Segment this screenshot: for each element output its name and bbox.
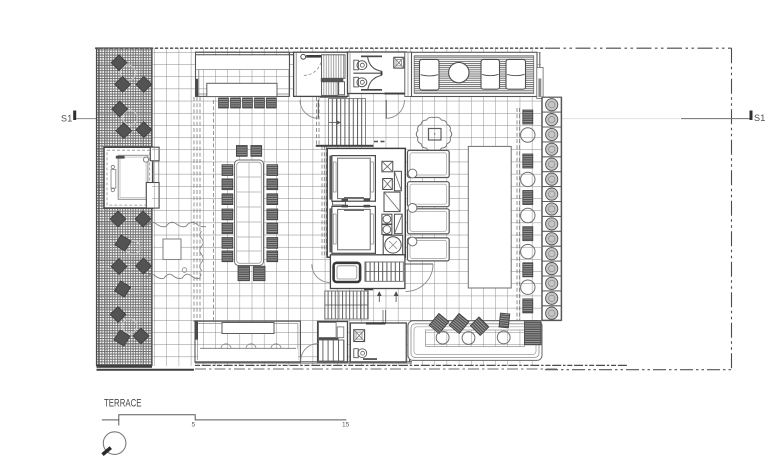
svg-text:S1: S1 [61,114,73,124]
svg-text:5: 5 [192,422,196,429]
svg-text:S1: S1 [754,113,766,123]
svg-text:TERRACE: TERRACE [104,398,142,410]
svg-text:15: 15 [342,422,350,429]
